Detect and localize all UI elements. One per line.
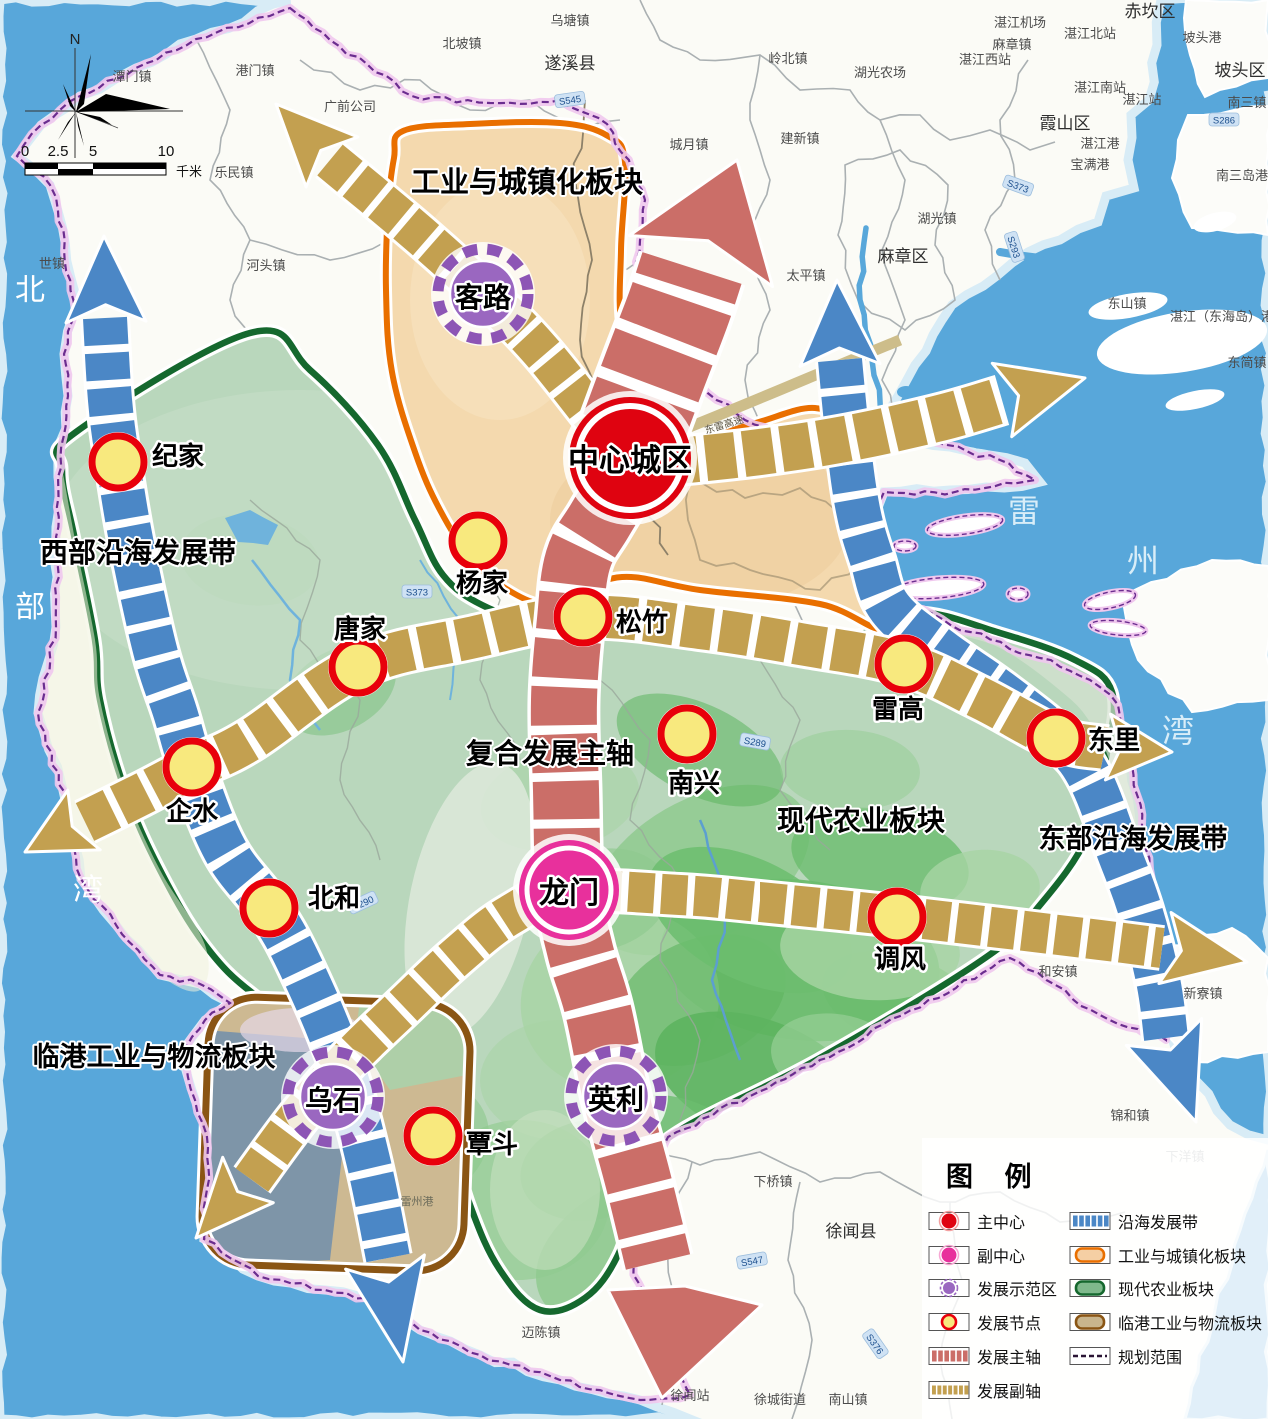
svg-text:雷州港: 雷州港 bbox=[401, 1195, 434, 1208]
svg-text:千米: 千米 bbox=[176, 164, 202, 179]
svg-text:麻章镇: 麻章镇 bbox=[992, 37, 1031, 52]
svg-text:湛江（东海岛）港: 湛江（东海岛）港 bbox=[1170, 309, 1268, 324]
svg-text:复合发展主轴: 复合发展主轴 bbox=[466, 737, 634, 769]
svg-text:湖光农场: 湖光农场 bbox=[854, 65, 906, 80]
svg-text:东山镇: 东山镇 bbox=[1107, 296, 1146, 311]
svg-text:迈陈镇: 迈陈镇 bbox=[521, 1325, 560, 1340]
svg-text:太平镇: 太平镇 bbox=[786, 268, 825, 283]
svg-text:唐家: 唐家 bbox=[334, 614, 386, 644]
svg-text:湾: 湾 bbox=[73, 874, 103, 907]
svg-text:调风: 调风 bbox=[874, 944, 926, 974]
svg-text:临港工业与物流板块: 临港工业与物流板块 bbox=[33, 1041, 277, 1072]
svg-text:岭北镇: 岭北镇 bbox=[768, 51, 807, 66]
svg-text:东部沿海发展带: 东部沿海发展带 bbox=[1039, 823, 1228, 854]
svg-text:发展主轴: 发展主轴 bbox=[977, 1349, 1041, 1367]
svg-text:规划范围: 规划范围 bbox=[1118, 1349, 1182, 1367]
svg-text:麻章区: 麻章区 bbox=[878, 247, 929, 266]
svg-text:N: N bbox=[70, 31, 81, 48]
svg-text:现代农业板块: 现代农业板块 bbox=[1118, 1281, 1214, 1299]
svg-text:临港工业与物流板块: 临港工业与物流板块 bbox=[1118, 1315, 1262, 1333]
svg-text:乌塘镇: 乌塘镇 bbox=[550, 13, 589, 28]
svg-text:新寮镇: 新寮镇 bbox=[1183, 986, 1222, 1001]
svg-text:湾: 湾 bbox=[1162, 713, 1194, 749]
svg-text:下桥镇: 下桥镇 bbox=[753, 1174, 792, 1189]
svg-text:企水: 企水 bbox=[166, 796, 219, 826]
svg-text:2.5: 2.5 bbox=[48, 143, 69, 160]
svg-text:发展示范区: 发展示范区 bbox=[977, 1281, 1057, 1299]
svg-text:S373: S373 bbox=[406, 588, 428, 599]
svg-text:副中心: 副中心 bbox=[977, 1248, 1025, 1266]
svg-text:潭门镇: 潭门镇 bbox=[112, 69, 151, 84]
svg-text:5: 5 bbox=[89, 143, 97, 160]
svg-text:湖光镇: 湖光镇 bbox=[917, 211, 956, 226]
svg-text:港门镇: 港门镇 bbox=[235, 63, 274, 78]
svg-text:南兴: 南兴 bbox=[668, 768, 720, 798]
svg-text:东里: 东里 bbox=[1088, 725, 1140, 755]
svg-text:湛江南站: 湛江南站 bbox=[1074, 80, 1126, 95]
svg-text:发展节点: 发展节点 bbox=[977, 1315, 1041, 1333]
svg-text:英利: 英利 bbox=[588, 1084, 644, 1115]
svg-text:湛江站: 湛江站 bbox=[1122, 92, 1161, 107]
svg-text:纪家: 纪家 bbox=[152, 441, 204, 471]
svg-text:城月镇: 城月镇 bbox=[669, 137, 708, 152]
svg-text:北和: 北和 bbox=[308, 883, 360, 913]
svg-text:主中心: 主中心 bbox=[977, 1214, 1025, 1232]
svg-text:10: 10 bbox=[158, 143, 175, 160]
svg-text:工业与城镇化板块: 工业与城镇化板块 bbox=[411, 166, 643, 199]
svg-text:世镇: 世镇 bbox=[39, 256, 65, 271]
svg-text:乌石: 乌石 bbox=[305, 1085, 361, 1116]
svg-text:宝满港: 宝满港 bbox=[1070, 157, 1109, 172]
svg-text:南山镇: 南山镇 bbox=[828, 1392, 867, 1407]
svg-text:发展副轴: 发展副轴 bbox=[977, 1383, 1041, 1401]
svg-text:湛江北站: 湛江北站 bbox=[1064, 26, 1116, 41]
svg-text:北: 北 bbox=[15, 274, 45, 307]
svg-text:沿海发展带: 沿海发展带 bbox=[1118, 1214, 1198, 1232]
svg-text:湛江港: 湛江港 bbox=[1080, 136, 1119, 151]
svg-text:中心城区: 中心城区 bbox=[568, 443, 692, 478]
svg-text:锦和镇: 锦和镇 bbox=[1110, 1108, 1149, 1123]
svg-text:乐民镇: 乐民镇 bbox=[214, 165, 253, 180]
svg-text:广前公司: 广前公司 bbox=[324, 99, 376, 114]
svg-text:坡头区: 坡头区 bbox=[1215, 61, 1266, 80]
svg-text:S286: S286 bbox=[1213, 116, 1235, 127]
svg-text:赤坎区: 赤坎区 bbox=[1125, 2, 1176, 21]
svg-text:南三岛港: 南三岛港 bbox=[1216, 168, 1268, 183]
svg-text:遂溪县: 遂溪县 bbox=[545, 54, 596, 73]
svg-text:雷: 雷 bbox=[1008, 493, 1040, 529]
svg-text:徐闻县: 徐闻县 bbox=[826, 1222, 877, 1241]
svg-text:工业与城镇化板块: 工业与城镇化板块 bbox=[1118, 1248, 1246, 1266]
svg-text:西部沿海发展带: 西部沿海发展带 bbox=[40, 536, 236, 568]
svg-text:徐城街道: 徐城街道 bbox=[754, 1392, 806, 1407]
svg-text:和安镇: 和安镇 bbox=[1038, 964, 1077, 979]
svg-text:雷高: 雷高 bbox=[872, 694, 924, 724]
svg-text:徐闻站: 徐闻站 bbox=[670, 1388, 709, 1403]
svg-text:现代农业板块: 现代农业板块 bbox=[777, 805, 945, 836]
svg-text:南三镇: 南三镇 bbox=[1227, 95, 1266, 110]
svg-text:图 例: 图 例 bbox=[946, 1162, 1044, 1192]
svg-text:松竹: 松竹 bbox=[616, 607, 668, 637]
svg-text:部: 部 bbox=[15, 591, 45, 624]
svg-text:北坡镇: 北坡镇 bbox=[442, 36, 481, 51]
svg-text:0: 0 bbox=[21, 143, 29, 160]
svg-text:湛江西站: 湛江西站 bbox=[959, 52, 1011, 67]
svg-text:霞山区: 霞山区 bbox=[1040, 114, 1091, 133]
svg-text:建新镇: 建新镇 bbox=[780, 131, 819, 146]
svg-text:州: 州 bbox=[1127, 543, 1159, 579]
svg-text:客路: 客路 bbox=[455, 281, 512, 313]
svg-text:龙门: 龙门 bbox=[539, 877, 599, 910]
svg-text:湛江机场: 湛江机场 bbox=[994, 15, 1046, 30]
svg-text:河头镇: 河头镇 bbox=[246, 258, 285, 273]
svg-text:坡头港: 坡头港 bbox=[1182, 30, 1221, 45]
svg-text:东简镇: 东简镇 bbox=[1227, 355, 1266, 370]
svg-text:杨家: 杨家 bbox=[456, 568, 508, 598]
svg-text:覃斗: 覃斗 bbox=[466, 1129, 518, 1159]
